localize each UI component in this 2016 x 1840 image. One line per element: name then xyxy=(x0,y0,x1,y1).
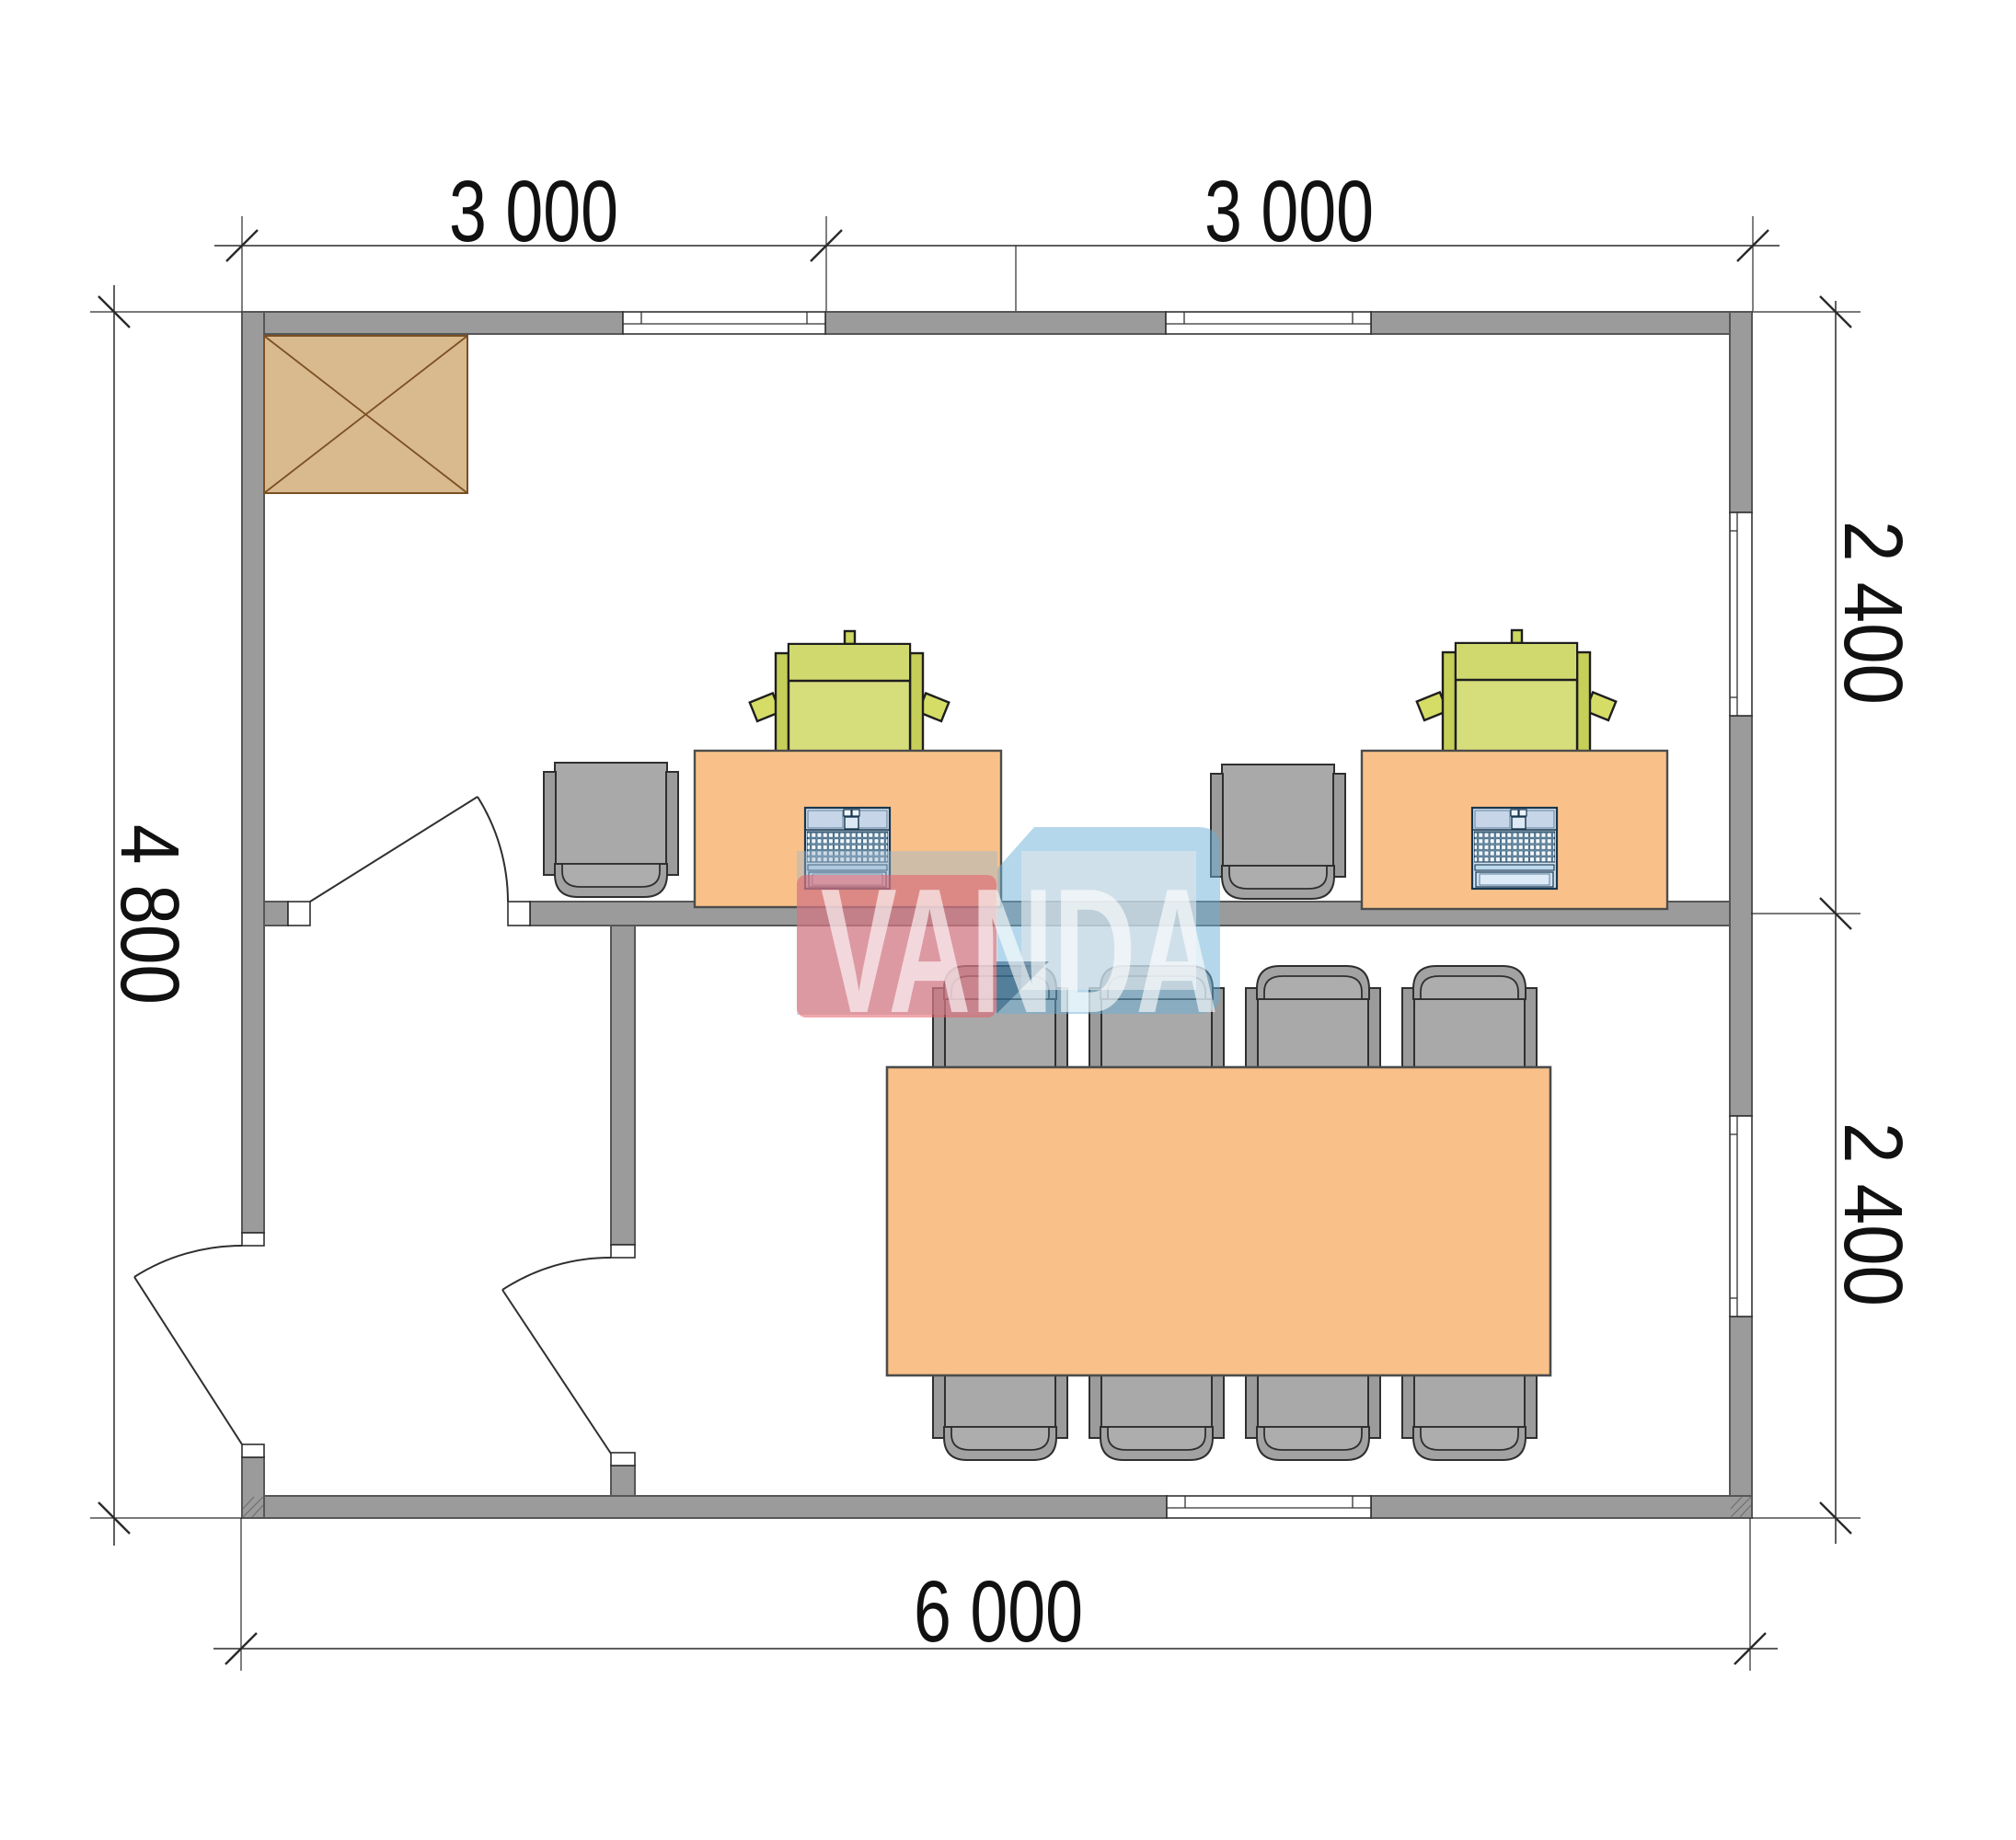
svg-text:3 000: 3 000 xyxy=(449,163,618,260)
svg-text:2 400: 2 400 xyxy=(1826,521,1918,705)
svg-text:VANDA: VANDA xyxy=(821,851,1218,1050)
svg-text:3 000: 3 000 xyxy=(1204,163,1374,260)
svg-text:6 000: 6 000 xyxy=(914,1563,1083,1661)
svg-text:4 800: 4 800 xyxy=(103,824,195,1005)
svg-text:2 400: 2 400 xyxy=(1826,1122,1918,1306)
